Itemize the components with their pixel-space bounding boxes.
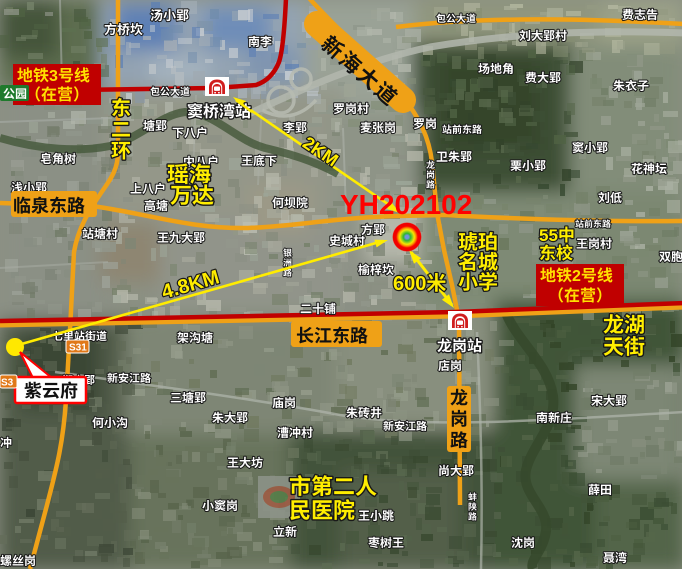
- svg-text:55: 55: [539, 226, 558, 245]
- svg-text:2: 2: [572, 268, 581, 285]
- svg-text:S31: S31: [69, 343, 87, 354]
- svg-text:YH202102: YH202102: [340, 189, 472, 220]
- svg-text:S3: S3: [1, 378, 14, 389]
- svg-text:3: 3: [49, 68, 58, 85]
- svg-text:600: 600: [393, 273, 426, 295]
